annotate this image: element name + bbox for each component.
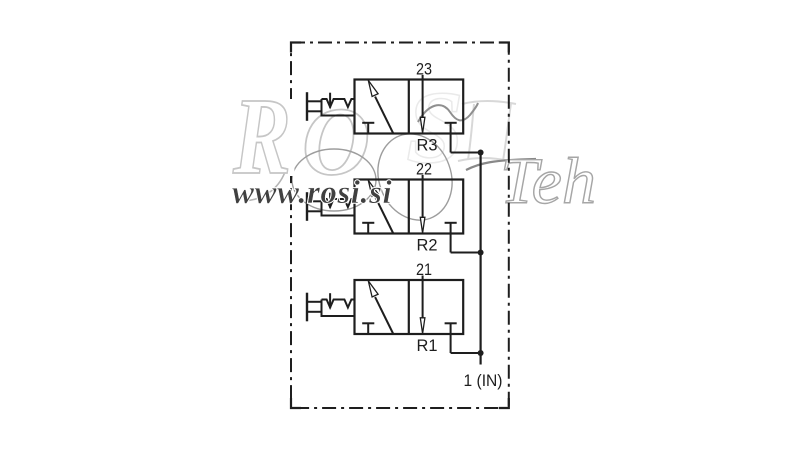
svg-text:R3: R3 xyxy=(417,137,438,155)
svg-text:www.rosi.si: www.rosi.si xyxy=(232,175,393,211)
svg-text:21: 21 xyxy=(416,261,432,279)
svg-text:23: 23 xyxy=(416,60,432,78)
svg-text:22: 22 xyxy=(416,160,432,178)
svg-text:S: S xyxy=(406,70,464,185)
svg-text:Teh: Teh xyxy=(500,145,596,218)
svg-text:R2: R2 xyxy=(417,237,438,255)
svg-text:R1: R1 xyxy=(417,337,438,355)
svg-text:1 (IN): 1 (IN) xyxy=(464,372,503,390)
